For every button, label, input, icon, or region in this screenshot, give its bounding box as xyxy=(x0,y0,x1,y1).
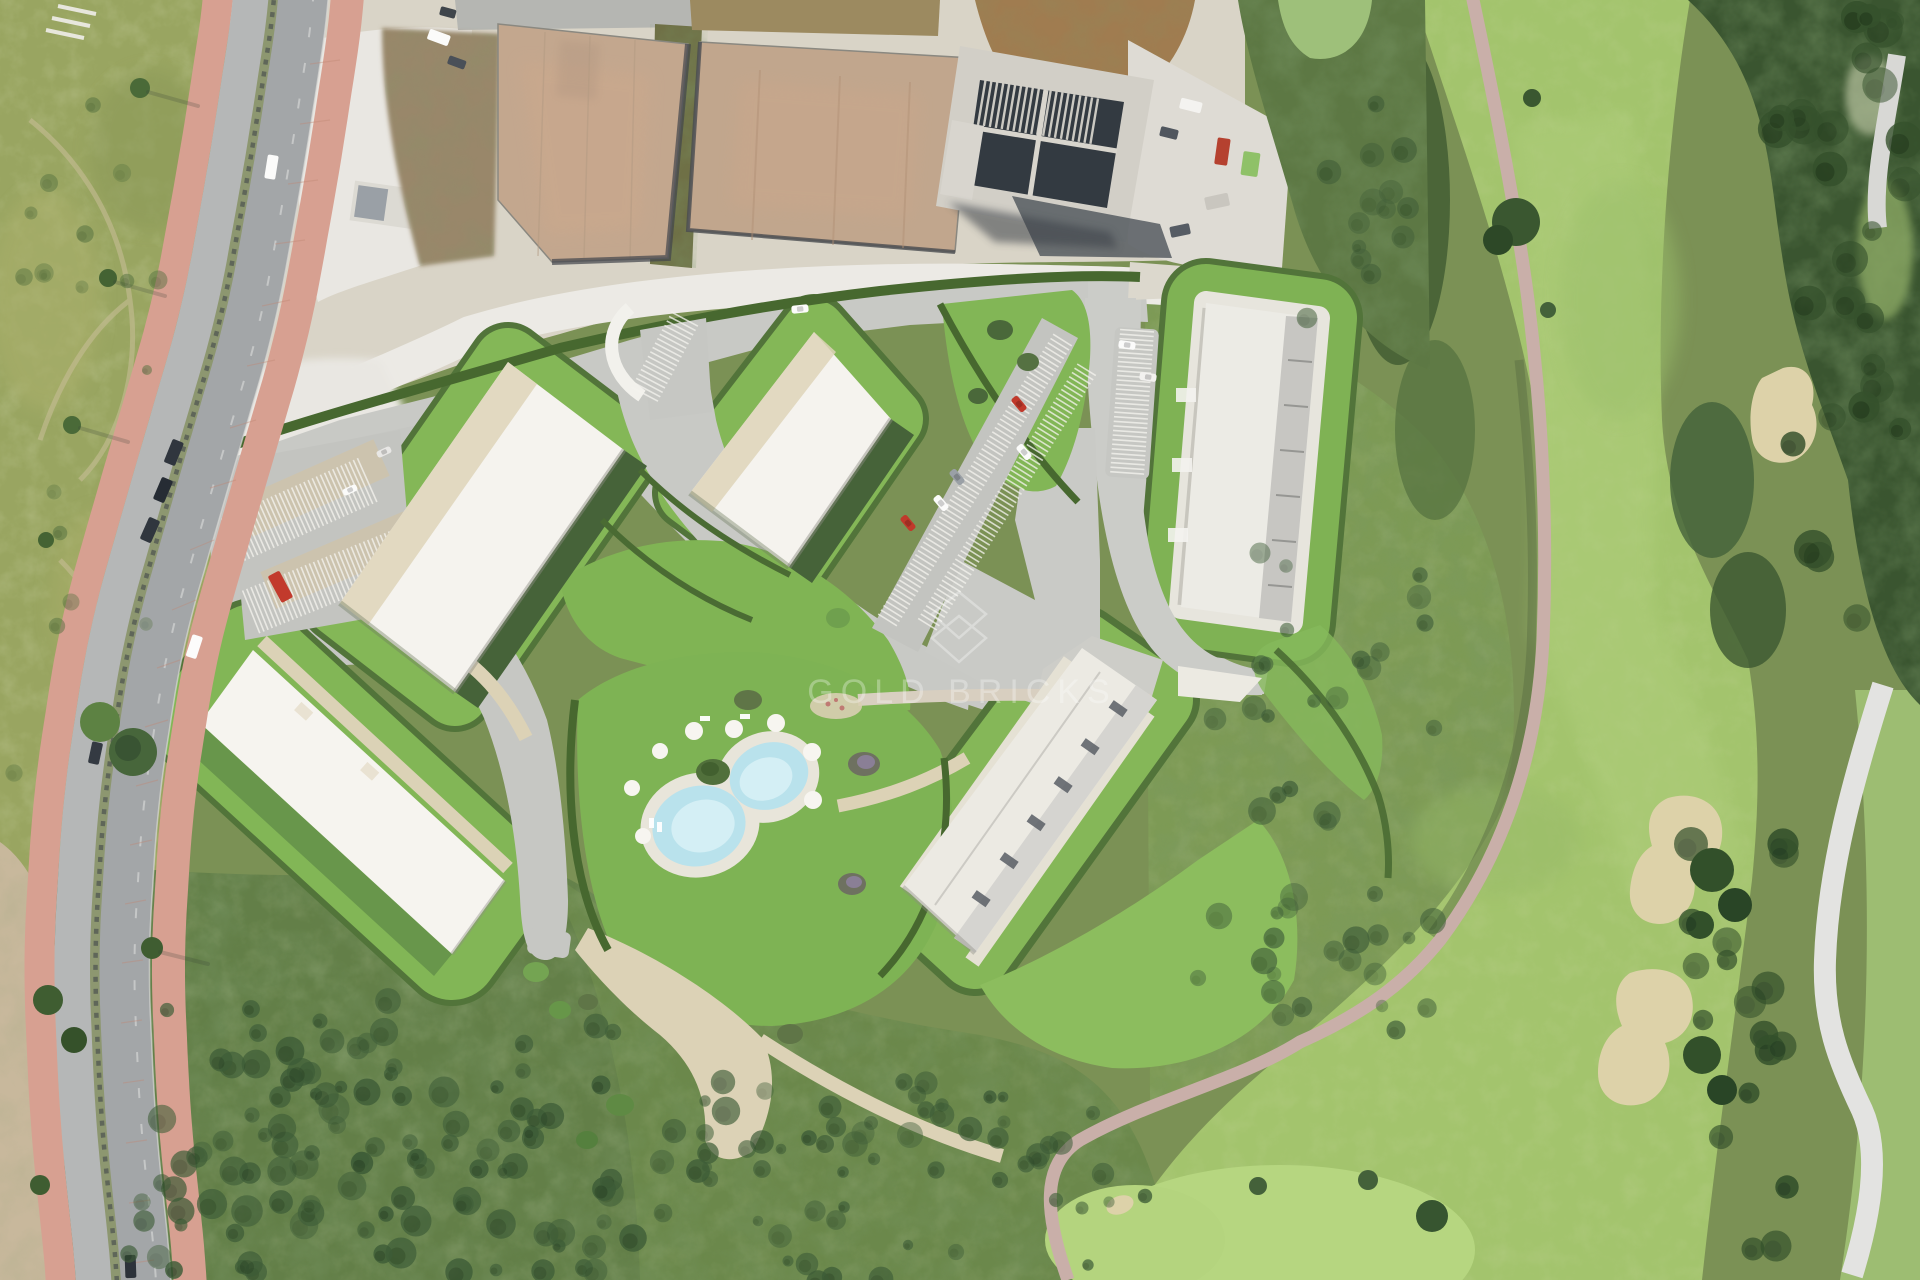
svg-text:GOLD BRICKS: GOLD BRICKS xyxy=(807,673,1116,711)
